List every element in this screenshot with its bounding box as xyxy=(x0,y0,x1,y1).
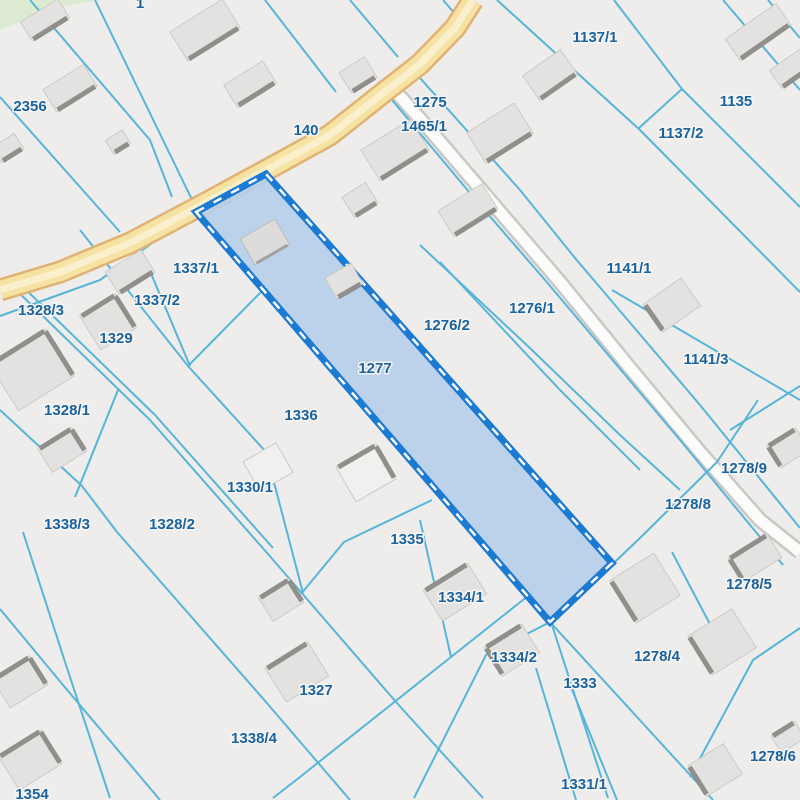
parcel-label-1275: 1275 xyxy=(413,94,446,111)
parcel-label-1336: 1336 xyxy=(284,407,317,424)
parcel-label-1278/5: 1278/5 xyxy=(726,576,772,593)
parcel-label-1135: 1135 xyxy=(720,93,753,110)
parcel-label-1330/1: 1330/1 xyxy=(227,479,273,496)
parcel-label-1278/8: 1278/8 xyxy=(665,496,711,513)
parcel-label-1278/4: 1278/4 xyxy=(634,648,681,665)
parcel-label-1338/3: 1338/3 xyxy=(44,516,90,533)
parcel-label-1137/2: 1137/2 xyxy=(658,125,703,142)
parcel-label-1141/3: 1141/3 xyxy=(683,351,728,368)
parcel-label-1141/1: 1141/1 xyxy=(606,260,651,277)
parcel-label-1465/1: 1465/1 xyxy=(401,118,447,135)
parcel-label-1334/2: 1334/2 xyxy=(491,649,537,666)
parcel-label-1335: 1335 xyxy=(390,531,423,548)
parcel-label-1278/6: 1278/6 xyxy=(750,748,796,765)
parcel-label-1: 1 xyxy=(136,0,144,12)
cadastral-map-canvas[interactable]: 1235614012751465/11137/111351137/21141/1… xyxy=(0,0,800,800)
parcel-label-1337/1: 1337/1 xyxy=(173,260,219,277)
parcel-label-140: 140 xyxy=(293,122,318,139)
parcel-label-1337/2: 1337/2 xyxy=(134,292,180,309)
parcel-label-1277: 1277 xyxy=(358,360,391,377)
parcel-label-1331/1: 1331/1 xyxy=(561,776,607,793)
parcel-label-1329: 1329 xyxy=(99,330,132,347)
parcel-label-1278/9: 1278/9 xyxy=(721,460,767,477)
parcel-label-2356: 2356 xyxy=(13,98,46,115)
parcel-label-1328/3: 1328/3 xyxy=(18,302,64,319)
parcel-label-1328/2: 1328/2 xyxy=(149,516,195,533)
parcel-label-1338/4: 1338/4 xyxy=(231,730,278,747)
parcel-label-1333: 1333 xyxy=(563,675,596,692)
parcel-label-1137/1: 1137/1 xyxy=(572,29,617,46)
parcel-label-1334/1: 1334/1 xyxy=(438,589,484,606)
parcel-label-1276/2: 1276/2 xyxy=(424,317,470,334)
parcel-label-1327: 1327 xyxy=(299,682,332,699)
parcel-label-1354: 1354 xyxy=(15,786,49,800)
parcel-label-1276/1: 1276/1 xyxy=(509,300,555,317)
parcel-label-1328/1: 1328/1 xyxy=(44,402,90,419)
cadastral-map[interactable]: 1235614012751465/11137/111351137/21141/1… xyxy=(0,0,800,800)
